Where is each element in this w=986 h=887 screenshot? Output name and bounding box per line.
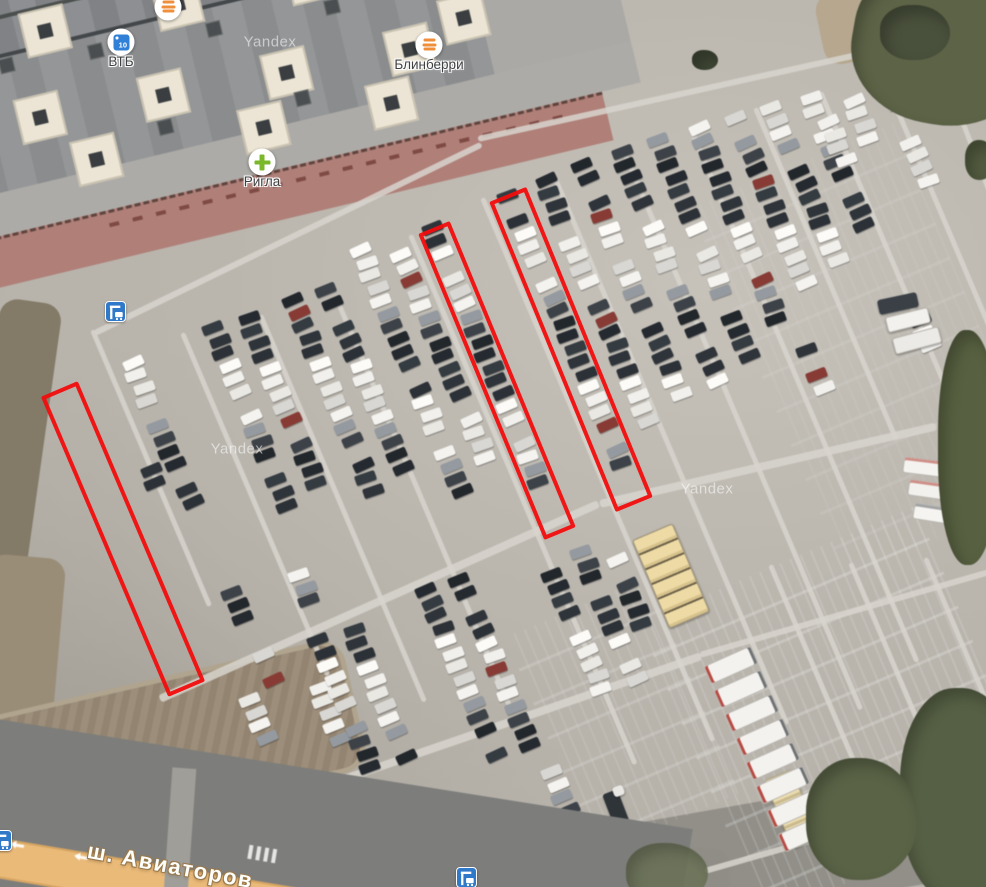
bus-stop-icon[interactable] [0,830,12,851]
bus-stop-icon[interactable] [105,301,126,322]
bus-stop-icon[interactable] [456,867,477,887]
satellite-map[interactable]: YandexYandexYandex ш. Авиаторов 10 ВТБ Б… [0,0,986,887]
